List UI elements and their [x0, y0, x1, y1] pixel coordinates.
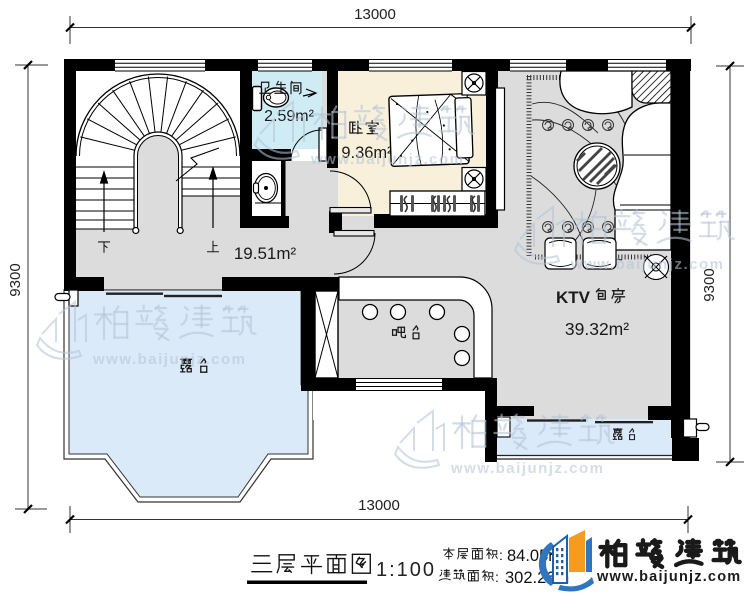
svg-text:www.baijunjz.com: www.baijunjz.com: [570, 256, 724, 273]
svg-text::: :: [499, 547, 503, 563]
svg-text:www.baijunjz.com: www.baijunjz.com: [310, 151, 464, 168]
svg-text:www.baijunjz.com: www.baijunjz.com: [92, 351, 246, 368]
svg-text:www.baijunjz.com: www.baijunjz.com: [450, 460, 604, 477]
svg-text:19.51m²: 19.51m²: [234, 244, 297, 263]
svg-text:www.baijunjz.com: www.baijunjz.com: [596, 569, 741, 585]
svg-text:9300: 9300: [7, 263, 24, 296]
svg-text:39.32m²: 39.32m²: [565, 319, 629, 339]
svg-text:KTV: KTV: [556, 288, 591, 307]
svg-text:13000: 13000: [354, 6, 396, 23]
svg-text::: :: [495, 569, 499, 585]
svg-text:9300: 9300: [701, 268, 718, 301]
svg-text:13000: 13000: [358, 497, 400, 514]
svg-text:1:100: 1:100: [376, 559, 436, 581]
